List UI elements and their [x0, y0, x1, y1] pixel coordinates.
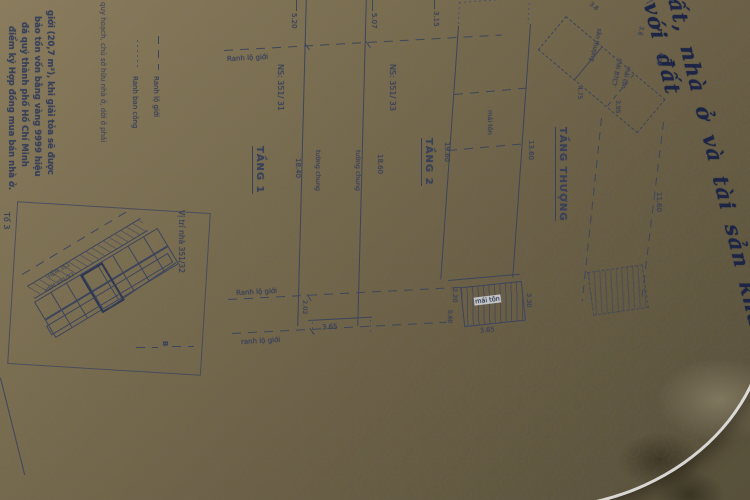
floor1-neighbor-right: NS: 351/ 33 — [388, 64, 397, 111]
floor1-neighbor-left: NS: 351/ 31 — [276, 64, 285, 111]
map-marker-dash-right — [172, 346, 194, 347]
margin-note-line1: giới (20,7 m²), khi giải tỏa sẽ được — [45, 10, 55, 175]
floor2-dim-right: 13.60 — [527, 140, 535, 160]
margin-note-small: quy hoạch, chủ sở hữu nhà ở, dời ở phải — [99, 2, 107, 142]
floor2-porch-width-dim: 3.65 — [480, 325, 495, 334]
margin-note-line4: điểm ký Hợp đồng mua bán nhà ở. — [6, 26, 16, 190]
margin-note-line3: đá quý thành phố Hồ Chí Minh — [19, 22, 29, 167]
margin-note-line2: bảo tồn vốn bằng vàng 9999 hiệu — [32, 16, 42, 177]
legend-lo-gioi-label: Ranh lộ giới — [152, 76, 160, 117]
dim-extension-3 — [434, 0, 435, 9]
roof-strip-side-dim: 11.60 — [655, 192, 663, 212]
roof-floor-title: TẦNG THƯỢNG — [555, 127, 568, 221]
floor1-wall-left-label: tường chung — [314, 150, 322, 191]
legend-ban-cong-label: Ranh ban công — [131, 76, 139, 129]
group-label: Tổ 3 — [2, 212, 11, 229]
roof-dim-d: 4.75 — [576, 86, 583, 99]
floor1-dim-right: 18.60 — [376, 154, 384, 174]
legend-ban-cong-symbol — [137, 40, 138, 70]
floor2-porch-roof — [460, 281, 526, 327]
floor2-porch-side-dim: 0.60 — [446, 310, 453, 323]
floor1-front-setback-dim: 2.02 — [301, 300, 309, 314]
floor1-dim-top-left: 5.20 — [290, 13, 298, 29]
roof-strip-rear-box — [587, 264, 649, 315]
floor1-wall-right-label: tường chung — [354, 150, 362, 191]
roof-plan-divider-1 — [574, 47, 602, 80]
floor2-setback-dim: 2.20 — [451, 288, 459, 302]
floor1-title: TẦNG 1 — [252, 146, 265, 194]
photo-of-cadastral-drawing: ất, nhà ở và tài sản khác gắn liền với đ… — [0, 0, 750, 500]
floor1-dim-left: 18.40 — [294, 158, 302, 178]
roof-dim-e: 3.95 — [614, 100, 621, 113]
map-marker-dash-left — [136, 347, 158, 348]
floor2-porch-depth-dim: 3.30 — [525, 293, 533, 307]
legend-lo-gioi-symbol — [158, 36, 159, 70]
floor2-title: TẦNG 2 — [421, 138, 434, 186]
map-marker-label: B — [161, 341, 169, 346]
dim-extension-2 — [372, 0, 373, 11]
floor1-front-width-dim: 3.65 — [322, 323, 338, 332]
dim-extension-1 — [296, 0, 297, 11]
floor2-dim-top: 3.15 — [432, 11, 440, 27]
floor2-roof-label: mái tôn — [486, 110, 494, 135]
floor2-dim-left: 19.60 — [443, 142, 451, 162]
floor1-dim-top-right: 5.07 — [370, 13, 378, 29]
